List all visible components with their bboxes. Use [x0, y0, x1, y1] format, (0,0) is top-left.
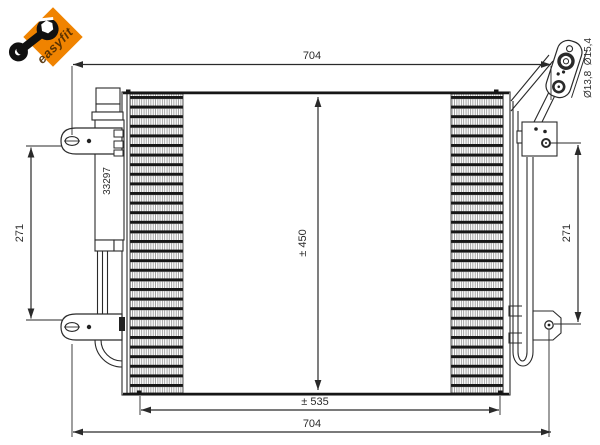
right-connector-block [517, 122, 557, 156]
dim-right-pitch-label: 271 [561, 224, 573, 242]
dim-core-height-label: ± 450 [297, 229, 309, 256]
dim-left-pitch-label: 271 [14, 224, 26, 242]
dim-bottom-width-label: 704 [303, 418, 321, 430]
condenser-drawing: 33297 [0, 0, 600, 445]
dim-core-width-label: ± 535 [301, 396, 328, 408]
port-diameters-label: Ø13,8 Ø15,4 [583, 38, 594, 98]
receiver-drier [92, 88, 124, 314]
dim-top-width-label: 704 [303, 50, 321, 62]
fin-band-left [130, 94, 183, 393]
part-number-label: 33297 [102, 167, 113, 195]
right-bottom-bracket [509, 306, 561, 343]
fin-band-right [451, 94, 503, 393]
condenser-core [122, 90, 510, 396]
left-top-bracket [61, 128, 123, 156]
top-right-connector-plate [543, 38, 588, 102]
technical-drawing-page: easyfit [0, 0, 600, 445]
left-bottom-bracket [61, 314, 125, 367]
